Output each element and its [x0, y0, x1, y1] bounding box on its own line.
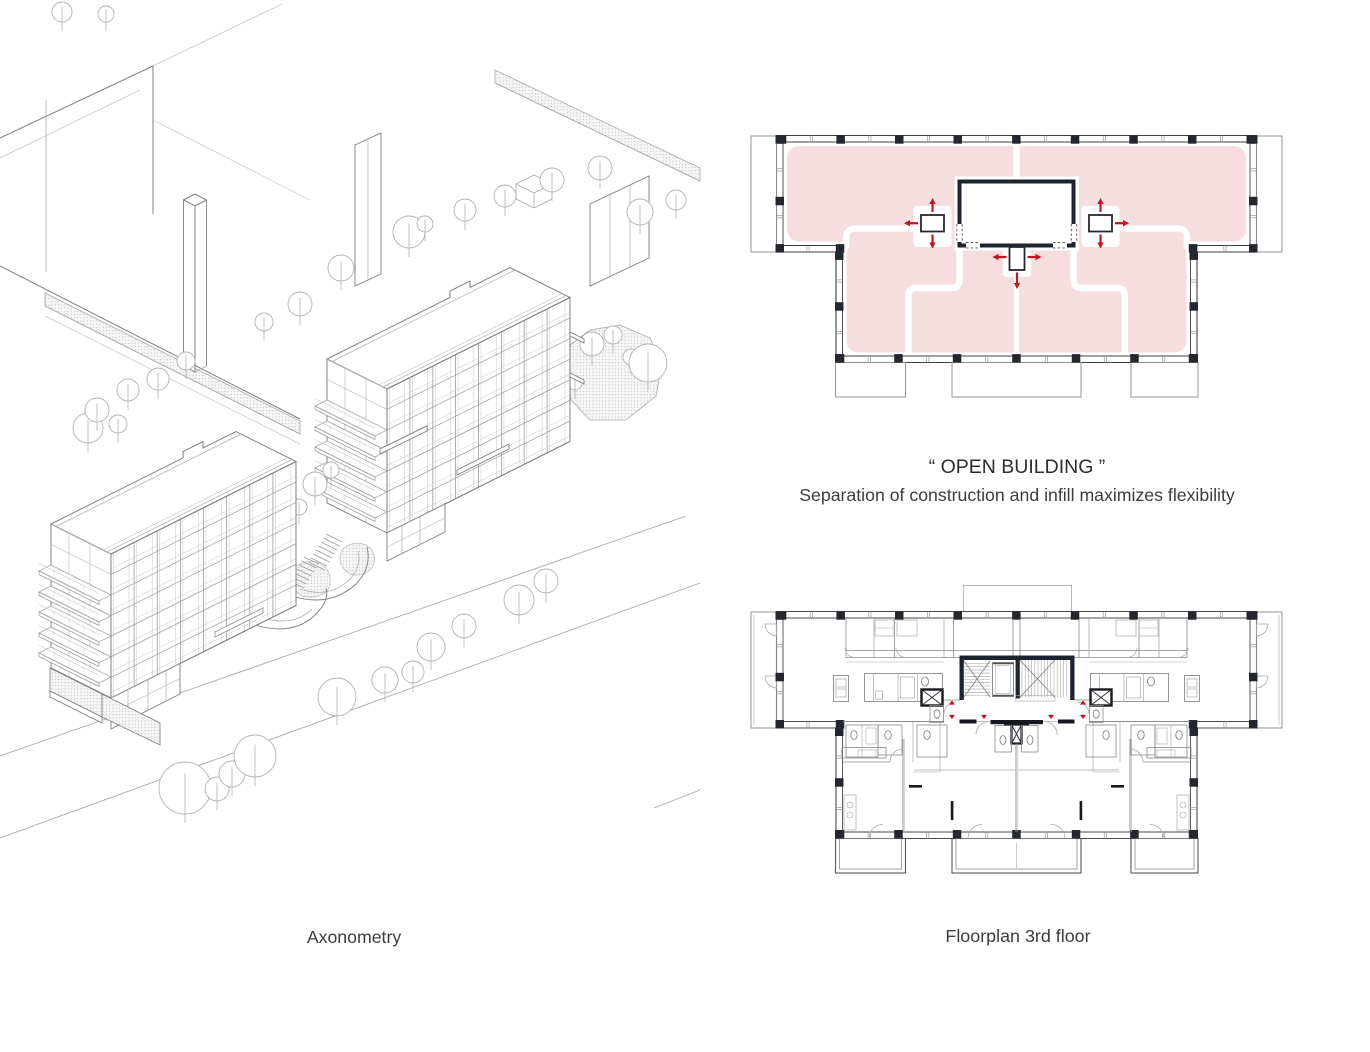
svg-text:Floorplan 3rd floor: Floorplan 3rd floor — [945, 926, 1090, 946]
svg-text:Axonometry: Axonometry — [307, 927, 402, 947]
svg-text:“ OPEN BUILDING ”: “ OPEN BUILDING ” — [929, 456, 1106, 478]
svg-text:Separation of construction and: Separation of construction and infill ma… — [799, 485, 1235, 505]
